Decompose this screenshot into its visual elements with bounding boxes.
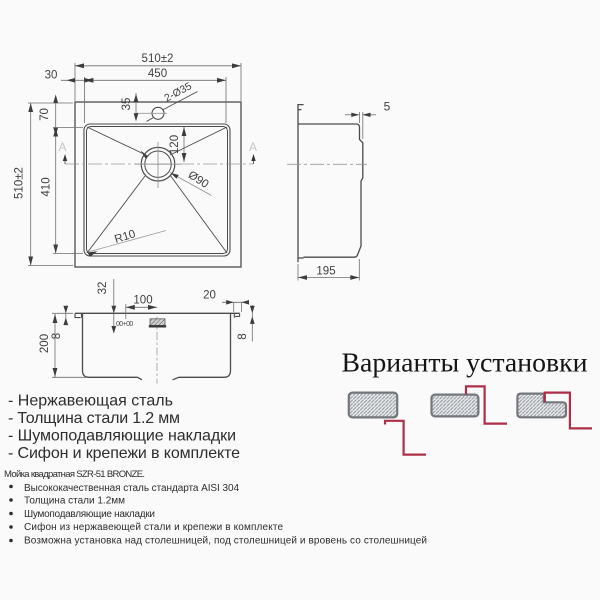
svg-text:100: 100 <box>133 295 152 307</box>
svg-text:120: 120 <box>169 135 181 154</box>
svg-text:5: 5 <box>384 100 391 114</box>
svg-text:- Сифон и крепежи в комплекте: - Сифон и крепежи в комплекте <box>8 445 240 462</box>
svg-text:Шумоподавляющие накладки: Шумоподавляющие накладки <box>24 509 155 520</box>
svg-text:00+00: 00+00 <box>116 321 133 328</box>
svg-text:Мойка квадратная SZR-51 BRONZE: Мойка квадратная SZR-51 BRONZE. <box>4 469 145 480</box>
svg-text:32: 32 <box>97 282 109 295</box>
svg-text:- Толщина стали 1.2 мм: - Толщина стали 1.2 мм <box>8 410 180 427</box>
svg-text:8: 8 <box>237 333 249 339</box>
svg-text:- Шумоподавляющие накладки: - Шумоподавляющие накладки <box>8 428 236 445</box>
svg-text:35: 35 <box>121 98 133 111</box>
svg-text:510±2: 510±2 <box>14 167 26 199</box>
svg-text:510±2: 510±2 <box>142 53 174 65</box>
svg-text:Варианты установки: Варианты установки <box>342 348 588 379</box>
svg-text:Толщина стали 1.2мм: Толщина стали 1.2мм <box>24 496 125 507</box>
svg-text:Высококачественная сталь станд: Высококачественная сталь стандарта AISI … <box>24 483 239 494</box>
svg-text:410: 410 <box>41 177 53 196</box>
svg-text:- Нержавеющая сталь: - Нержавеющая сталь <box>8 393 173 410</box>
svg-text:A: A <box>58 140 66 154</box>
svg-text:30: 30 <box>45 70 58 82</box>
svg-text:70: 70 <box>39 108 51 121</box>
svg-text:8: 8 <box>51 333 63 339</box>
svg-text:200: 200 <box>39 334 51 353</box>
svg-text:Возможна установка над столешн: Возможна установка над столешницей, под … <box>24 536 427 547</box>
svg-text:450: 450 <box>148 68 167 80</box>
svg-text:Сифон из нержавеющей стали и к: Сифон из нержавеющей стали и крепежи в к… <box>24 521 283 533</box>
svg-text:195: 195 <box>316 266 335 278</box>
svg-text:A: A <box>249 140 257 154</box>
svg-text:20: 20 <box>203 290 216 302</box>
